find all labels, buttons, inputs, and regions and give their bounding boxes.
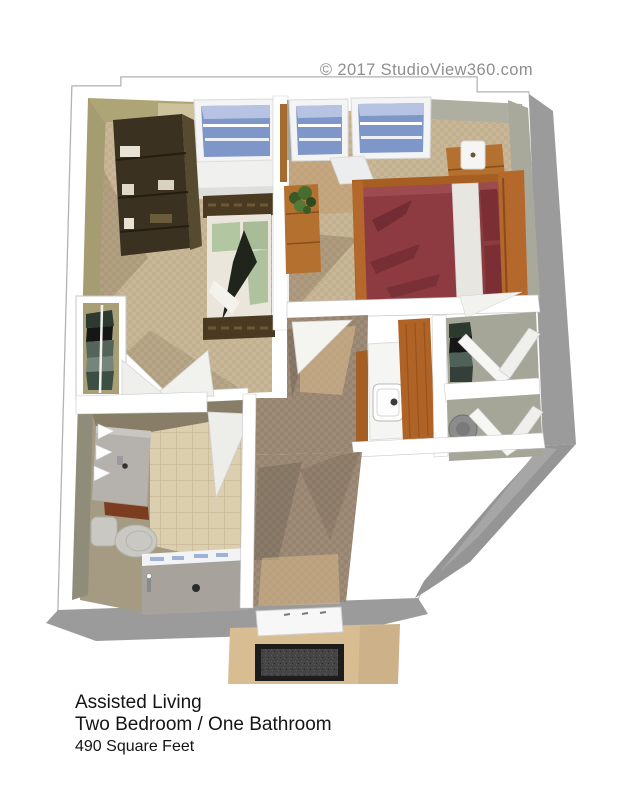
bathroom-east-wall [240, 394, 256, 608]
plan-title-line1: Assisted Living [75, 692, 332, 714]
cabinet-side [356, 350, 368, 443]
floor-plan [0, 0, 620, 804]
bedroom-1-window [194, 99, 276, 199]
shower [142, 548, 248, 615]
bathroom-north-wall [76, 392, 207, 414]
floor-plan-page: © 2017 StudioView360.com [0, 0, 620, 804]
bookshelf [113, 114, 202, 256]
bed-1 [203, 193, 275, 340]
bathroom [72, 400, 252, 615]
copyright-text: © 2017 StudioView360.com [320, 61, 533, 80]
closet-a [446, 312, 540, 387]
entry-door [256, 607, 343, 636]
doormat [255, 644, 344, 681]
faucet [117, 456, 123, 465]
bed-2 [352, 170, 528, 312]
shower-drain [192, 584, 200, 592]
pillow [484, 244, 502, 296]
faucet [391, 399, 398, 406]
shower-fixture [147, 578, 151, 592]
light-patch [258, 554, 340, 606]
vanity-counter [92, 426, 151, 506]
bedroom-2 [284, 97, 540, 318]
bedroom-2-window-left [289, 99, 348, 161]
window-sill [196, 160, 274, 190]
dresser [284, 184, 321, 274]
bed-runner [452, 183, 483, 302]
plan-title-line2: Two Bedroom / One Bathroom [75, 714, 332, 736]
title-block: Assisted Living Two Bedroom / One Bathro… [75, 692, 332, 757]
plan-title-line3: 490 Square Feet [75, 736, 332, 757]
